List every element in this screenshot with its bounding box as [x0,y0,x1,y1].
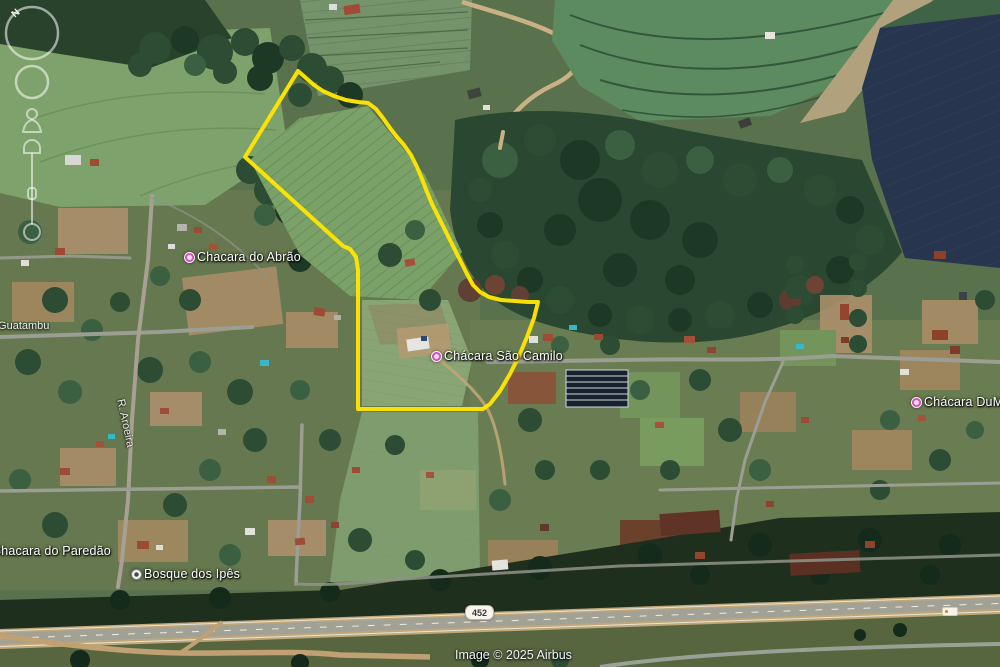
place-pin-bosque[interactable] [131,569,142,580]
place-label-abrao[interactable]: Chacara do Abrão [197,250,301,264]
road-shield-452: 452 [465,605,494,620]
place-pin-abrao[interactable] [184,252,195,263]
place-label-bosque[interactable]: Bosque dos Ipês [144,567,240,581]
place-pin-dumat[interactable] [911,397,922,408]
place-label-sao-camilo[interactable]: Chácara São Camilo [444,349,563,363]
road-shield-number: 452 [472,608,487,618]
place-pin-sao-camilo[interactable] [431,351,442,362]
road-label-guatambu: R. Guatambu [0,320,49,332]
place-label-paredao[interactable]: Chacara do Paredão [0,544,111,558]
road-minisign [942,607,958,616]
solar-array [566,370,628,407]
zoom-slider[interactable] [24,140,40,240]
place-label-dumat[interactable]: Chácara DuMat [924,395,1000,409]
nav-controls: N [0,0,70,250]
look-joystick[interactable] [16,66,48,98]
imagery-attribution: Image © 2025 Airbus [455,648,572,662]
map-canvas[interactable]: Chacara do Abrão Chácara São Camilo Chác… [0,0,1000,667]
pegman-icon[interactable] [23,109,41,132]
